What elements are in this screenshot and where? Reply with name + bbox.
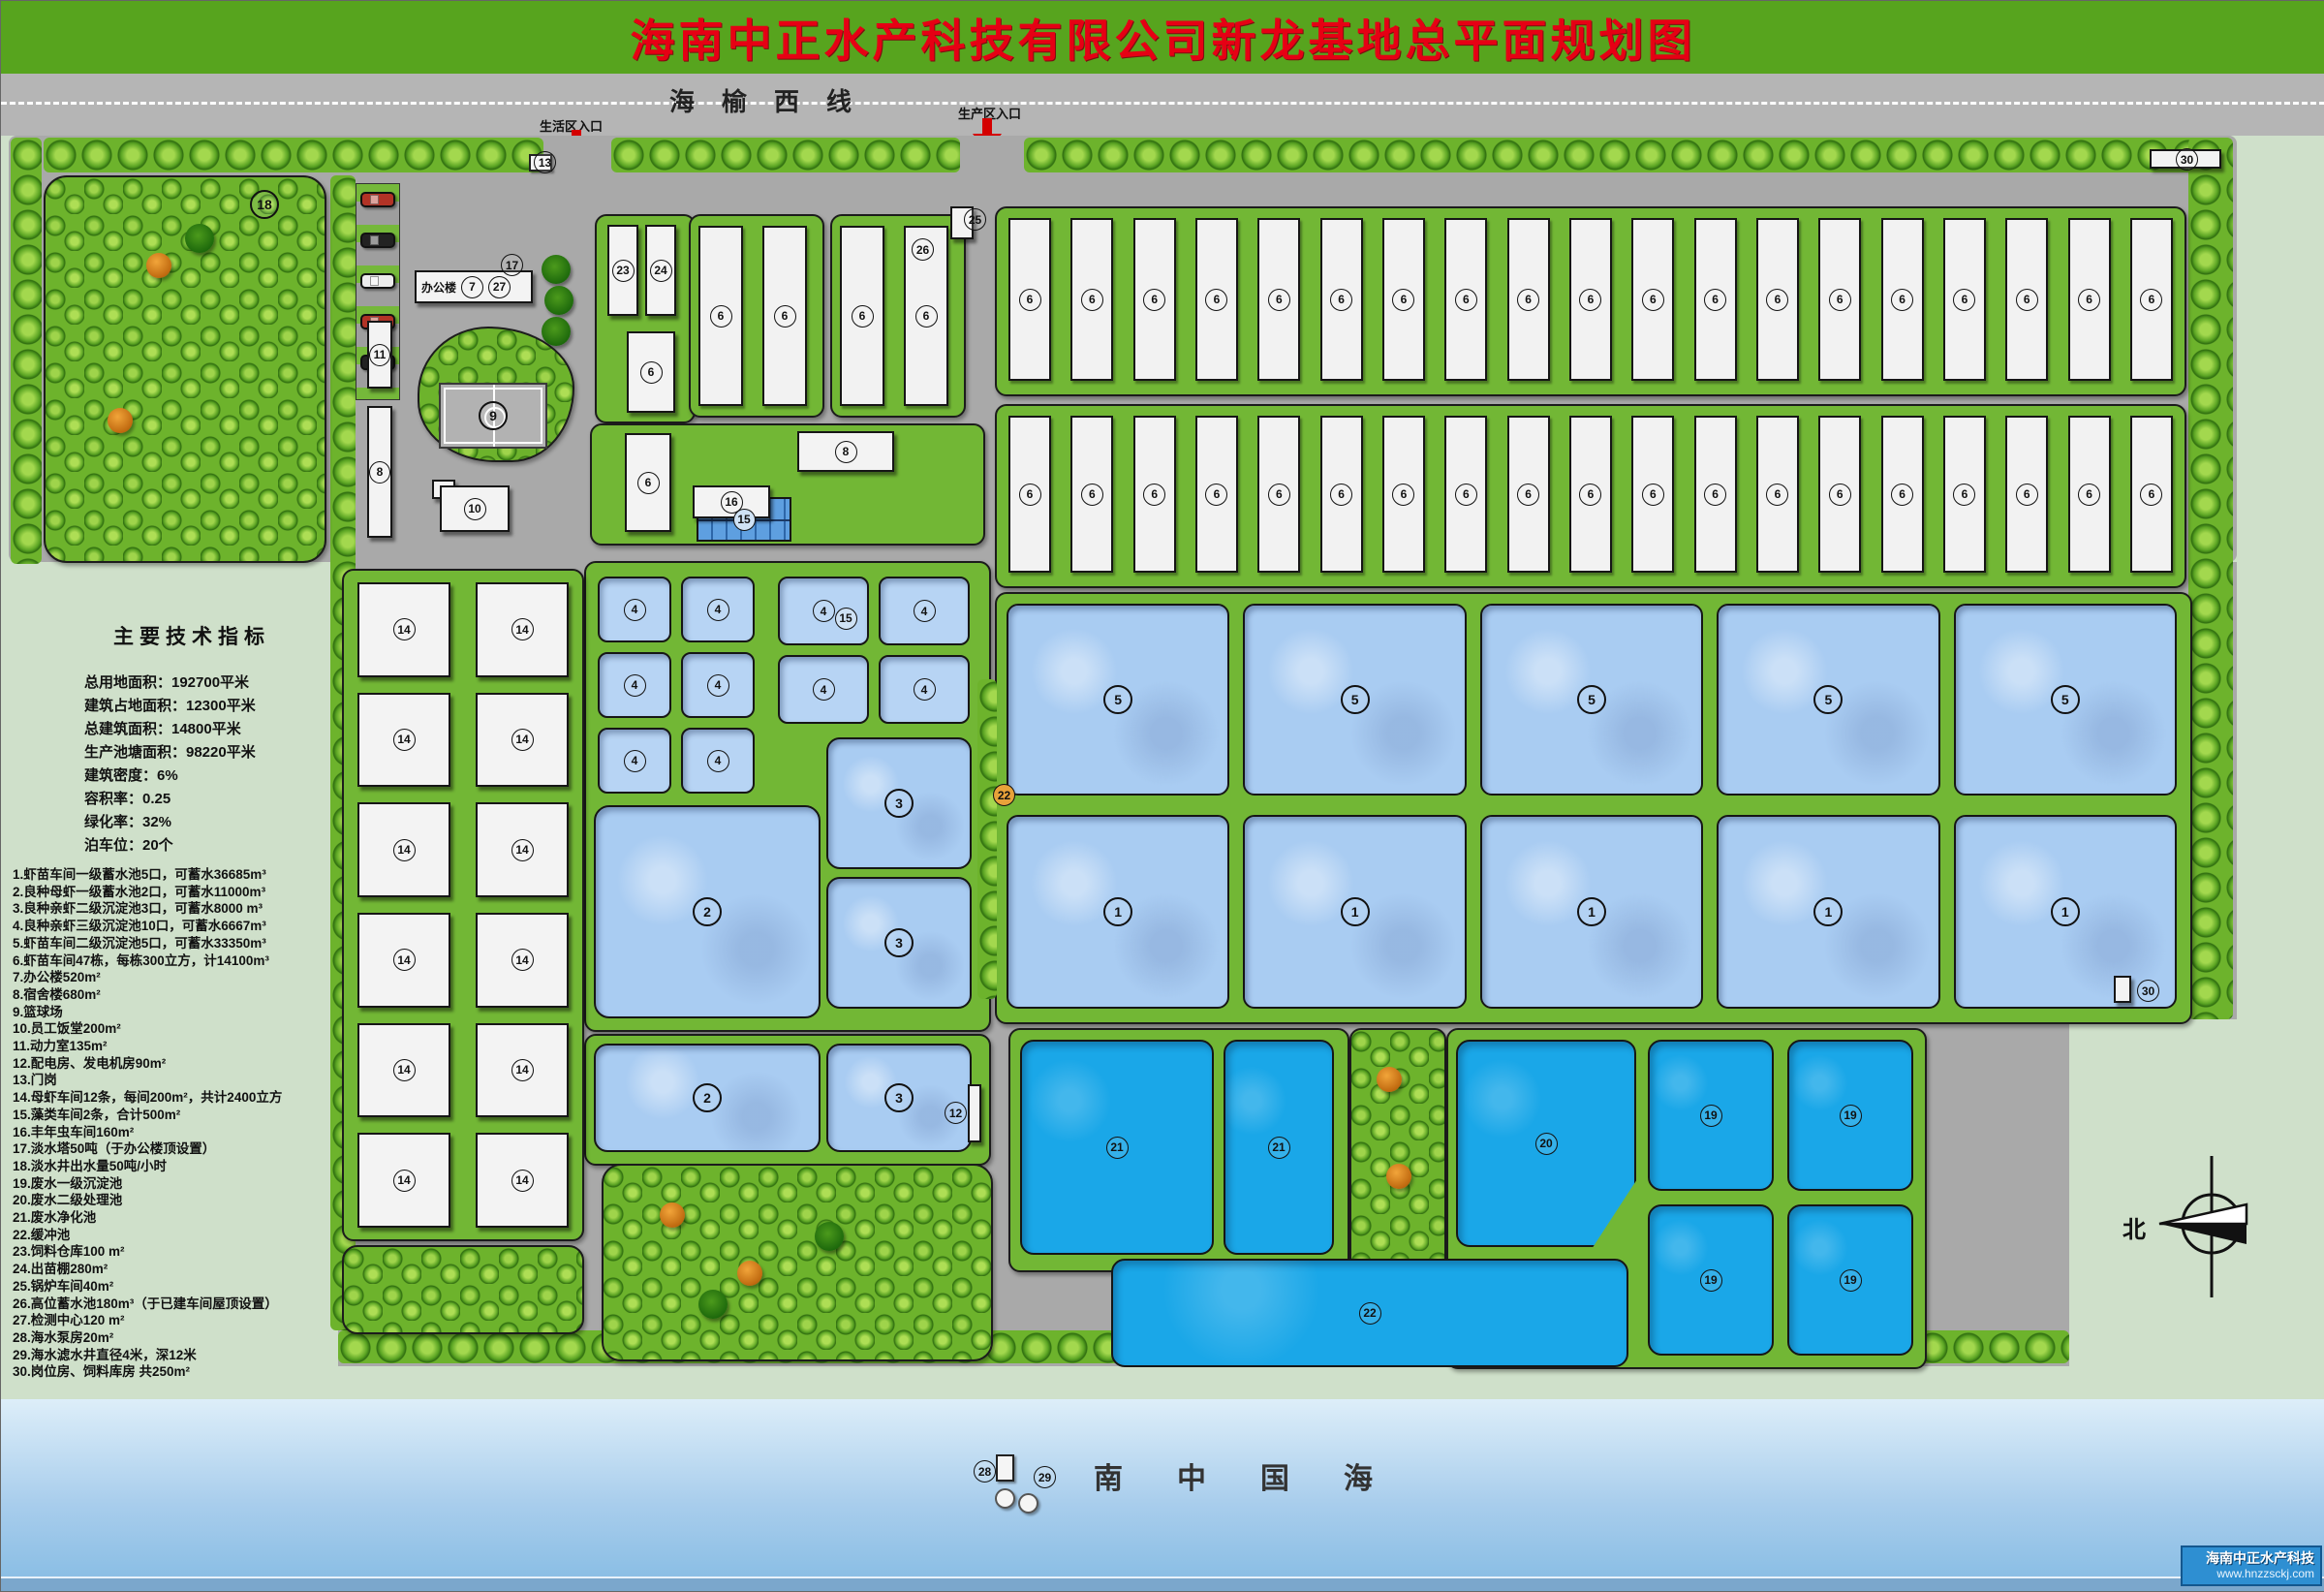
- ponds-tertiary-left: 4 4 4 4 4 4: [590, 569, 762, 801]
- shrimp-barn: 6: [1444, 218, 1487, 381]
- label-6: 6: [2016, 484, 2038, 506]
- label-14: 14: [511, 729, 534, 751]
- shrimp-barn: 6: [1943, 218, 1986, 381]
- building-barn-6: 6: [625, 433, 671, 532]
- label-4: 4: [914, 678, 936, 701]
- pond-waste-19: 19: [1787, 1040, 1913, 1191]
- building-mother-shrimp-14: 14: [476, 693, 569, 788]
- label-6: 6: [1019, 484, 1041, 506]
- legend-item: 29.海水滤水井直径4米，深12米: [13, 1347, 282, 1364]
- pond-settling-3a: 3: [826, 737, 972, 869]
- building-mother-shrimp-14: 14: [357, 1133, 450, 1228]
- shrimp-barn: 6: [1382, 416, 1425, 573]
- shrimp-barn: 6: [1257, 218, 1300, 381]
- label-6: 6: [1268, 289, 1290, 311]
- shrimp-barn: 6: [1631, 416, 1674, 573]
- label-14: 14: [511, 949, 534, 971]
- label-6: 6: [915, 305, 938, 328]
- indicator-line: 绿化率：32%: [84, 811, 270, 834]
- pond-settling-5: 5: [1480, 604, 1703, 796]
- label-14: 14: [393, 729, 416, 751]
- legend-item: 26.高位蓄水池180m³（于已建车间屋顶设置）: [13, 1295, 282, 1313]
- shrimp-barn: 6: [1631, 218, 1674, 381]
- label-30: 30: [2137, 980, 2159, 1002]
- label-1: 1: [1103, 897, 1132, 926]
- label-10: 10: [464, 498, 486, 520]
- label-4: 4: [707, 599, 729, 621]
- label-6: 6: [1517, 289, 1539, 311]
- label-14: 14: [393, 839, 416, 861]
- pond-tertiary-4: 4: [879, 577, 970, 645]
- shrimp-barn: 6: [2068, 416, 2111, 573]
- car-icon: [360, 233, 395, 248]
- label-sea-well-29: 29: [1034, 1466, 1056, 1488]
- label-6: 6: [1081, 289, 1103, 311]
- label-6: 6: [1330, 289, 1352, 311]
- label-6: 6: [637, 472, 660, 494]
- pond-tertiary-4: 4: [598, 728, 671, 794]
- label-4: 4: [707, 750, 729, 772]
- legend-item: 14.母虾车间12条，每间200m²，共计2400立方: [13, 1089, 282, 1107]
- label-6: 6: [1205, 289, 1227, 311]
- label-6: 6: [710, 305, 732, 328]
- shrimp-barn: 6: [840, 226, 884, 406]
- shrimp-barn: 6: [1444, 416, 1487, 573]
- label-4: 4: [624, 750, 646, 772]
- shrimp-barn: 6: [1569, 416, 1612, 573]
- tree-belt-top-2: [611, 138, 960, 172]
- legend-item: 20.废水二级处理池: [13, 1192, 282, 1209]
- label-21: 21: [1268, 1137, 1290, 1159]
- watermark-url: www.hnzzsckj.com: [2188, 1567, 2314, 1581]
- label-30: 30: [2176, 148, 2198, 171]
- tree-icon: [737, 1261, 762, 1286]
- label-3: 3: [884, 1083, 914, 1112]
- legend-item: 1.虾苗车间一级蓄水池5口，可蓄水36685m³: [13, 866, 282, 884]
- label-19: 19: [1700, 1105, 1722, 1127]
- label-6: 6: [2078, 289, 2100, 311]
- shrimp-barn: 6: [2130, 416, 2173, 573]
- building-mother-shrimp-14: 14: [476, 1133, 569, 1228]
- indicator-line: 总用地面积：192700平米: [84, 671, 270, 695]
- shrimp-barn: 6: [1756, 218, 1799, 381]
- label-14: 14: [393, 1170, 416, 1192]
- shrimp-barn: 6: [1320, 218, 1363, 381]
- shrimp-barn: 6: [1008, 218, 1051, 381]
- shrimp-barn: 6: [1382, 218, 1425, 381]
- pond-purify-21b: 21: [1224, 1040, 1334, 1255]
- label-6: 6: [1143, 289, 1165, 311]
- compass: 北: [2123, 1154, 2287, 1299]
- legend-item: 5.虾苗车间二级沉淀池5口，可蓄水33350m³: [13, 935, 282, 952]
- tree-median-b: [1349, 1028, 1446, 1272]
- pond-settling-5: 5: [1954, 604, 2177, 796]
- label-14: 14: [393, 1059, 416, 1081]
- indicators-heading: 主要技术指标: [113, 621, 270, 650]
- shrimp-barn: 6: [2005, 416, 2048, 573]
- label-4: 4: [624, 599, 646, 621]
- building-mother-shrimp-14: 14: [357, 582, 450, 677]
- label-4: 4: [707, 674, 729, 697]
- label-4: 4: [813, 600, 835, 622]
- legend-item: 10.员工饭堂200m²: [13, 1020, 282, 1038]
- indicator-line: 容积率：0.25: [84, 788, 270, 811]
- building-barn-6-small: 6: [627, 331, 675, 413]
- tree-median: [977, 679, 997, 999]
- building-fry-shed-24: 24: [645, 225, 676, 316]
- label-6: 6: [2140, 484, 2162, 506]
- indicator-line: 生产池塘面积：98220平米: [84, 741, 270, 765]
- label-1: 1: [1341, 897, 1370, 926]
- building-mother-shrimp-14: 14: [357, 913, 450, 1008]
- label-6: 6: [1019, 289, 1041, 311]
- tree-icon: [146, 253, 171, 278]
- label-19: 19: [1840, 1105, 1862, 1127]
- label-rooftop-tank-26: 26: [912, 238, 934, 261]
- barn-row-bottom: 6 6 6 6 6 6 6 6 6 6 6 6: [997, 406, 2185, 582]
- shrimp-barn: 6: [1070, 218, 1113, 381]
- label-6: 6: [2078, 484, 2100, 506]
- shrimp-barn: 6: [1195, 218, 1238, 381]
- building-guard-30-east: [2114, 976, 2131, 1003]
- legend-item: 15.藻类车间2条，合计500m²: [13, 1107, 282, 1124]
- shrimp-barn: 6: [2130, 218, 2173, 381]
- label-14: 14: [393, 949, 416, 971]
- shrimp-barn: 6: [1694, 416, 1737, 573]
- pond-tertiary-4: 4: [879, 655, 970, 724]
- shrimp-barn: 6: [1569, 218, 1612, 381]
- pond-tertiary-4: 4: [681, 652, 755, 718]
- label-6: 6: [2140, 289, 2162, 311]
- pond4-grid-left: 4 4 4 4 4 4: [590, 569, 762, 801]
- label-22: 22: [1359, 1302, 1381, 1325]
- label-6: 6: [1953, 484, 1975, 506]
- barn-row-top: 6 6 6 6 6 6 6 6 6 6 6 6: [997, 208, 2185, 390]
- label-4: 4: [813, 678, 835, 701]
- tree-icon: [185, 224, 214, 253]
- indicator-line: 建筑占地面积：12300平米: [84, 695, 270, 718]
- pond-storage-1: 1: [1717, 815, 1939, 1009]
- label-27: 27: [488, 276, 511, 298]
- car-icon: [360, 273, 395, 289]
- shrimp-barn: 6: [1257, 416, 1300, 573]
- palm-tree-icon: [544, 286, 573, 315]
- tree-belt-left: [11, 138, 42, 564]
- ponds-secondary-settling: 5 5 5 5 5: [1007, 604, 2177, 796]
- legend-item: 18.淡水井出水量50吨/小时: [13, 1158, 282, 1175]
- label-14: 14: [511, 839, 534, 861]
- label-7: 7: [461, 276, 483, 298]
- legend-item: 11.动力室135m²: [13, 1038, 282, 1055]
- shrimp-barn: 6: [1818, 218, 1861, 381]
- ponds19-grid: 19 19 19 19: [1648, 1040, 1913, 1356]
- label-6: 6: [1953, 289, 1975, 311]
- highway-band: [1, 74, 2324, 136]
- label-16: 16: [721, 491, 743, 514]
- mother-shrimp-grid: 14 14 14 14 14 14 14 14 14 14 14: [344, 571, 582, 1239]
- label-6: 6: [1517, 484, 1539, 506]
- tree-icon: [1377, 1067, 1402, 1092]
- sea-filter-well: [1018, 1493, 1038, 1514]
- pond-storage-1: 1: [1243, 815, 1466, 1009]
- label-6: 6: [1642, 484, 1664, 506]
- label-3: 3: [884, 789, 914, 818]
- label-6: 6: [2016, 289, 2038, 311]
- label-11: 11: [369, 344, 390, 366]
- legend-item: 22.缓冲池: [13, 1227, 282, 1244]
- shrimp-barn: 6: [1195, 416, 1238, 573]
- palm-tree-icon: [815, 1222, 844, 1251]
- palm-tree-icon: [542, 255, 571, 284]
- pond-brood-2b: 2: [594, 1044, 821, 1152]
- label-8: 8: [835, 441, 857, 463]
- highway-name: 海榆西线: [669, 82, 879, 118]
- shrimp-barn: 6: [2068, 218, 2111, 381]
- building-canteen-10: 10: [440, 485, 510, 532]
- pond-settling-5: 5: [1243, 604, 1466, 796]
- label-5: 5: [2051, 685, 2080, 714]
- label-5: 5: [1577, 685, 1606, 714]
- legend-item: 16.丰年虫车间160m²: [13, 1124, 282, 1141]
- shrimp-barn: 6: [1756, 416, 1799, 573]
- label-6: 6: [1579, 289, 1601, 311]
- label-6: 6: [1330, 484, 1352, 506]
- label-3: 3: [884, 928, 914, 957]
- label-6: 6: [1579, 484, 1601, 506]
- label-6: 6: [1704, 484, 1726, 506]
- shrimp-barn: 6: [762, 226, 807, 406]
- legend-item: 3.良种亲虾二级沉淀池3口，可蓄水8000 m³: [13, 900, 282, 918]
- label-6: 6: [640, 361, 663, 384]
- ponds-primary-storage: 1 1 1 1 1: [1007, 815, 2177, 1009]
- pond-settling-3c: 3: [826, 1044, 972, 1152]
- building-mother-shrimp-14: 14: [357, 802, 450, 897]
- label-5: 5: [1103, 685, 1132, 714]
- label-2: 2: [693, 1083, 722, 1112]
- legend-item: 21.废水净化池: [13, 1209, 282, 1227]
- indicator-line: 总建筑面积：14800平米: [84, 718, 270, 741]
- label-12: 12: [945, 1102, 967, 1124]
- pond-treatment-20: 20: [1456, 1040, 1636, 1247]
- pond-tertiary-4: 4: [681, 728, 755, 794]
- legend-item: 28.海水泵房20m²: [13, 1329, 282, 1347]
- barn-row-top-block: 6 6 6 6 6 6 6 6 6 6 6 6: [995, 206, 2186, 396]
- label-14: 14: [511, 618, 534, 640]
- indicator-line: 建筑密度：6%: [84, 765, 270, 788]
- legend-item: 23.饲料仓库100 m²: [13, 1243, 282, 1261]
- park-southwest: [602, 1164, 993, 1361]
- label-2: 2: [693, 897, 722, 926]
- label-6: 6: [1766, 289, 1788, 311]
- technical-indicators: 主要技术指标 总用地面积：192700平米 建筑占地面积：12300平米总建筑面…: [84, 621, 270, 858]
- pond-tertiary-4: 4: [598, 652, 671, 718]
- building-power-room-11: 11: [367, 321, 392, 389]
- label-6: 6: [1081, 484, 1103, 506]
- label-6: 6: [1143, 484, 1165, 506]
- pond-waste-19: 19: [1648, 1204, 1774, 1356]
- pond4-grid-right: 4 4 4 4: [770, 569, 977, 732]
- label-15: 15: [835, 608, 857, 630]
- building-mother-shrimp-14: 14: [476, 913, 569, 1008]
- barn-row-bottom-block: 6 6 6 6 6 6 6 6 6 6 6 6: [995, 404, 2186, 588]
- legend-item: 7.办公楼520m²: [13, 969, 282, 986]
- site-plan-canvas: 海南中正水产科技有限公司新龙基地总平面规划图 海榆西线 生活区入口 生产区入口 …: [0, 0, 2324, 1592]
- indicator-line: 泊车位：20个: [84, 834, 270, 858]
- shrimp-barn: 6: [1881, 416, 1924, 573]
- label-25: 25: [964, 208, 986, 231]
- legend-item: 9.篮球场: [13, 1004, 282, 1021]
- shrimp-barn: 6: [2005, 218, 2048, 381]
- building-mother-shrimp-14: 14: [476, 1023, 569, 1118]
- page-title: 海南中正水产科技有限公司新龙基地总平面规划图: [631, 6, 1696, 70]
- label-6: 6: [1642, 289, 1664, 311]
- label-6: 6: [1891, 289, 1913, 311]
- legend-item: 25.锅炉车间40m²: [13, 1278, 282, 1295]
- legend-item: 24.出苗棚280m²: [13, 1261, 282, 1278]
- label-6: 6: [852, 305, 874, 328]
- label-5: 5: [1813, 685, 1843, 714]
- sea-pump-house: [996, 1454, 1014, 1482]
- label-6: 6: [774, 305, 796, 328]
- legend-item: 6.虾苗车间47栋，每栋300立方，计14100m³: [13, 952, 282, 970]
- label-14: 14: [511, 1059, 534, 1081]
- pond-settling-5: 5: [1007, 604, 1229, 796]
- barns-a1: 6 6: [698, 226, 807, 406]
- shrimp-barn: 6: [1818, 416, 1861, 573]
- label-court-9: 9: [479, 401, 508, 430]
- pond-purify-21a: 21: [1020, 1040, 1214, 1255]
- label-14: 14: [511, 1170, 534, 1192]
- pond-tertiary-4: 4: [681, 577, 755, 642]
- pond-waste-19: 19: [1787, 1204, 1913, 1356]
- label-4: 4: [914, 600, 936, 622]
- shrimp-barn: 6: [1507, 218, 1550, 381]
- tree-icon: [660, 1202, 685, 1228]
- pond-storage-1: 1: [1007, 815, 1229, 1009]
- label-1: 1: [2051, 897, 2080, 926]
- label-gate-13: 13: [534, 151, 556, 173]
- label-water-tower-17: 17: [501, 254, 523, 276]
- label-19: 19: [1700, 1269, 1722, 1292]
- label-23: 23: [612, 260, 635, 282]
- mother-shrimp-block: 14 14 14 14 14 14 14 14 14 14 14: [342, 569, 584, 1241]
- label-6: 6: [1704, 289, 1726, 311]
- highway-centerline: [1, 102, 2324, 105]
- legend-items: 1.虾苗车间一级蓄水池5口，可蓄水36685m³ 2.良种母虾一级蓄水池2口，可…: [13, 866, 282, 1381]
- ponds-waste-settling: 19 19 19 19: [1648, 1040, 1913, 1356]
- shrimp-barn: 6: [1008, 416, 1051, 573]
- building-mother-shrimp-14: 14: [476, 802, 569, 897]
- building-brine-shrimp-16: 16: [693, 485, 770, 518]
- shrimp-barn: 6: [1881, 218, 1924, 381]
- ponds-tertiary-right: 4 4 4 4: [770, 569, 977, 732]
- shrimp-barn: 6: [1320, 416, 1363, 573]
- compass-icon: [2123, 1154, 2287, 1299]
- shrimp-barn: 6: [1070, 416, 1113, 573]
- label-6: 6: [1268, 484, 1290, 506]
- pond-tertiary-4: 4: [598, 577, 671, 642]
- building-dormitory-8-east: 8: [797, 431, 894, 472]
- title-bar: 海南中正水产科技有限公司新龙基地总平面规划图: [1, 1, 2324, 74]
- office-label: 办公楼: [421, 279, 456, 296]
- tree-belt-top-3: [1024, 138, 2198, 172]
- shrimp-barn: 6: [1943, 416, 1986, 573]
- shrimp-barn: 6: [1507, 416, 1550, 573]
- label-well-18: 18: [250, 190, 279, 219]
- legend-item: 12.配电房、发电机房90m²: [13, 1055, 282, 1073]
- legend-item: 19.废水一级沉淀池: [13, 1175, 282, 1193]
- label-6: 6: [1392, 484, 1414, 506]
- building-generator-12: [968, 1084, 981, 1142]
- watermark: 海南中正水产科技 www.hnzzsckj.com: [2181, 1545, 2322, 1586]
- building-feed-warehouse-23: 23: [607, 225, 638, 316]
- tree-belt-right: [2188, 138, 2233, 1019]
- pond-row-1: 1 1 1 1 1: [1007, 815, 2177, 1009]
- label-6: 6: [1829, 289, 1851, 311]
- legend-item: 30.岗位房、饲料库房 共250m²: [13, 1363, 282, 1381]
- legend-item: 17.淡水塔50吨（于办公楼顶设置）: [13, 1140, 282, 1158]
- watermark-company: 海南中正水产科技: [2188, 1550, 2314, 1567]
- building-mother-shrimp-14: 14: [476, 582, 569, 677]
- pond-storage-1: 1: [1480, 815, 1703, 1009]
- label-20: 20: [1535, 1133, 1558, 1155]
- label-24: 24: [650, 260, 672, 282]
- building-dormitory-8-west: 8: [367, 406, 392, 538]
- building-mother-shrimp-14: 14: [357, 1023, 450, 1118]
- label-21: 21: [1106, 1137, 1129, 1159]
- label-6: 6: [1392, 289, 1414, 311]
- building-mother-shrimp-14: 14: [357, 693, 450, 788]
- indicator-lines: 总用地面积：192700平米 建筑占地面积：12300平米总建筑面积：14800…: [84, 671, 270, 858]
- label-buffer-22: 22: [993, 784, 1015, 806]
- legend-item: 2.良种母虾一级蓄水池2口，可蓄水11000m³: [13, 884, 282, 901]
- shrimp-barn: 6: [1133, 218, 1176, 381]
- tree-icon: [1386, 1164, 1411, 1189]
- compass-north-label: 北: [2123, 1210, 2146, 1244]
- label-6: 6: [1205, 484, 1227, 506]
- pond-brood-2a: 2: [594, 805, 821, 1018]
- pond-tertiary-4: 4: [778, 655, 869, 724]
- label-6: 6: [1455, 484, 1477, 506]
- tree-belt-top-1: [44, 138, 543, 172]
- park-south-of-grid: [342, 1245, 584, 1334]
- label-5: 5: [1341, 685, 1370, 714]
- label-6: 6: [1766, 484, 1788, 506]
- legend-item: 27.检测中心120 m²: [13, 1312, 282, 1329]
- pond-row-5: 5 5 5 5 5: [1007, 604, 2177, 796]
- shrimp-barn: 6: [698, 226, 743, 406]
- shrimp-barn: 6: [1133, 416, 1176, 573]
- label-sea-pump-28: 28: [974, 1460, 996, 1483]
- label-6: 6: [1455, 289, 1477, 311]
- barn-block-a2: 6 6: [830, 214, 966, 418]
- pond-settling-5: 5: [1717, 604, 1939, 796]
- label-1: 1: [1577, 897, 1606, 926]
- entrance-production-arrow: [982, 118, 992, 134]
- sea-name: 南中国海: [1094, 1454, 1427, 1497]
- label-4: 4: [624, 674, 646, 697]
- legend-item: 4.良种亲虾三级沉淀池10口，可蓄水6667m³: [13, 918, 282, 935]
- label-6: 6: [1891, 484, 1913, 506]
- pond-settling-3b: 3: [826, 877, 972, 1009]
- pond-buffer-22: 22: [1111, 1259, 1628, 1367]
- pond-waste-19: 19: [1648, 1040, 1774, 1191]
- tree-icon: [108, 408, 133, 433]
- legend-list: 1.虾苗车间一级蓄水池5口，可蓄水36685m³ 2.良种母虾一级蓄水池2口，可…: [13, 866, 282, 1381]
- shrimp-barn: 6: [1694, 218, 1737, 381]
- legend-item: 8.宿舍楼680m²: [13, 986, 282, 1004]
- label-19: 19: [1840, 1269, 1862, 1292]
